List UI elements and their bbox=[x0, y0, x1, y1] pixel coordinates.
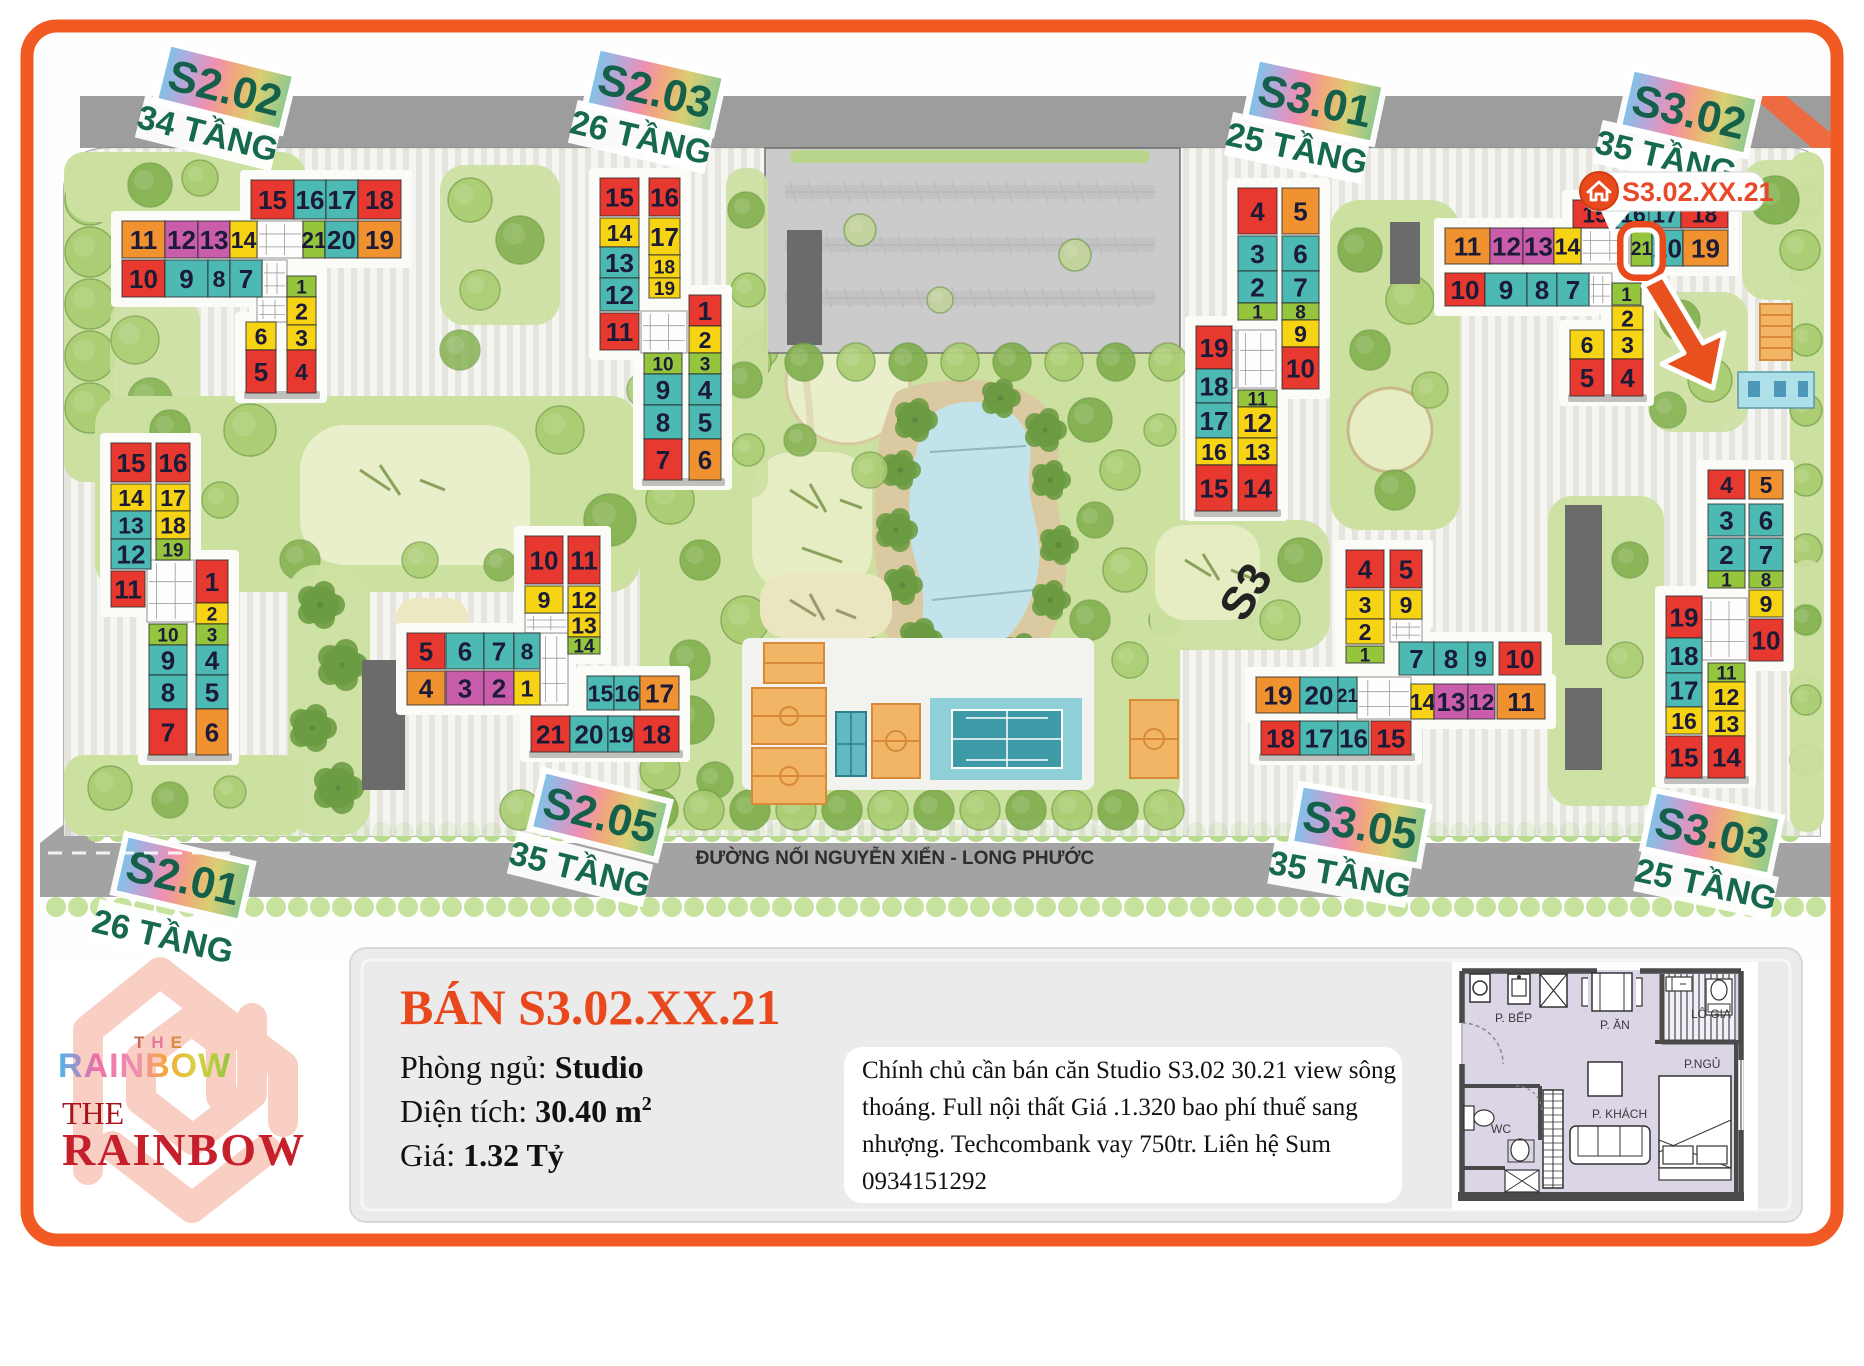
svg-text:S3.02.XX.21: S3.02.XX.21 bbox=[1622, 177, 1774, 207]
svg-text:6: 6 bbox=[458, 636, 472, 666]
svg-text:4: 4 bbox=[1620, 363, 1635, 393]
svg-text:16: 16 bbox=[159, 448, 188, 478]
svg-text:6: 6 bbox=[1759, 505, 1773, 535]
svg-text:16: 16 bbox=[1201, 439, 1227, 465]
svg-text:10: 10 bbox=[1506, 644, 1535, 674]
svg-text:6: 6 bbox=[1581, 332, 1594, 358]
svg-text:Phòng ngủ: Studio: Phòng ngủ: Studio bbox=[400, 1049, 644, 1085]
svg-text:6: 6 bbox=[255, 323, 268, 349]
svg-text:16: 16 bbox=[650, 182, 679, 212]
svg-text:8: 8 bbox=[656, 407, 670, 437]
svg-text:20: 20 bbox=[575, 719, 604, 749]
svg-text:13: 13 bbox=[1245, 439, 1271, 465]
svg-text:14: 14 bbox=[1712, 742, 1741, 772]
svg-text:13: 13 bbox=[571, 612, 597, 638]
svg-text:3: 3 bbox=[295, 325, 308, 351]
svg-text:2: 2 bbox=[1719, 540, 1733, 570]
svg-text:21: 21 bbox=[1631, 239, 1653, 260]
svg-text:15: 15 bbox=[588, 680, 614, 706]
svg-text:nhượng. Techcombank vay 750tr.: nhượng. Techcombank vay 750tr. Liên hệ S… bbox=[862, 1131, 1331, 1158]
svg-text:14: 14 bbox=[1555, 233, 1581, 259]
svg-text:14: 14 bbox=[231, 227, 257, 253]
svg-text:11: 11 bbox=[1454, 231, 1482, 261]
svg-text:17: 17 bbox=[1670, 675, 1699, 705]
svg-text:LÔ GIA: LÔ GIA bbox=[1691, 1006, 1731, 1021]
svg-text:10: 10 bbox=[1752, 625, 1781, 655]
svg-text:3: 3 bbox=[1250, 239, 1264, 269]
svg-text:17: 17 bbox=[160, 485, 186, 511]
svg-text:4: 4 bbox=[205, 645, 220, 675]
svg-text:18: 18 bbox=[160, 512, 186, 538]
svg-text:6: 6 bbox=[205, 717, 219, 747]
svg-text:7: 7 bbox=[492, 636, 506, 666]
svg-text:10: 10 bbox=[530, 545, 559, 575]
svg-text:15: 15 bbox=[1670, 742, 1699, 772]
svg-text:2: 2 bbox=[1359, 619, 1372, 645]
svg-text:19: 19 bbox=[1691, 233, 1720, 263]
svg-text:15: 15 bbox=[117, 448, 146, 478]
svg-text:P.NGỦ: P.NGỦ bbox=[1684, 1056, 1720, 1071]
svg-text:14: 14 bbox=[1410, 689, 1436, 715]
svg-text:1: 1 bbox=[1721, 570, 1732, 591]
svg-text:1: 1 bbox=[698, 296, 712, 326]
svg-text:13: 13 bbox=[1714, 711, 1740, 737]
svg-text:thoáng. Full nội thất Giá .1.3: thoáng. Full nội thất Giá .1.320 bao phí… bbox=[862, 1094, 1358, 1121]
svg-text:19: 19 bbox=[365, 225, 394, 255]
svg-text:18: 18 bbox=[642, 719, 671, 749]
svg-text:17: 17 bbox=[1200, 406, 1229, 436]
svg-text:19: 19 bbox=[1264, 680, 1293, 710]
svg-text:19: 19 bbox=[1670, 602, 1699, 632]
svg-text:12: 12 bbox=[571, 587, 597, 613]
svg-text:5: 5 bbox=[698, 407, 712, 437]
svg-text:2: 2 bbox=[207, 604, 218, 625]
svg-text:6: 6 bbox=[698, 445, 712, 475]
svg-text:WC: WC bbox=[1491, 1122, 1511, 1136]
svg-text:21: 21 bbox=[1337, 686, 1359, 707]
svg-text:9: 9 bbox=[1294, 321, 1307, 347]
svg-text:9: 9 bbox=[1474, 646, 1487, 672]
svg-text:1: 1 bbox=[1621, 285, 1632, 306]
svg-text:18: 18 bbox=[365, 185, 394, 215]
svg-text:7: 7 bbox=[161, 717, 175, 747]
svg-text:15: 15 bbox=[1377, 723, 1406, 753]
svg-text:6: 6 bbox=[1293, 239, 1307, 269]
svg-text:5: 5 bbox=[1293, 196, 1307, 226]
svg-text:2: 2 bbox=[295, 298, 308, 324]
svg-text:15: 15 bbox=[1200, 473, 1229, 503]
svg-text:5: 5 bbox=[1760, 472, 1773, 498]
svg-text:9: 9 bbox=[1760, 591, 1773, 617]
svg-text:19: 19 bbox=[654, 279, 675, 300]
svg-text:15: 15 bbox=[605, 182, 634, 212]
svg-text:Chính chủ cần bán căn Studio S: Chính chủ cần bán căn Studio S3.02 30.21… bbox=[862, 1057, 1396, 1084]
svg-text:4: 4 bbox=[1250, 196, 1265, 226]
svg-text:9: 9 bbox=[161, 645, 175, 675]
svg-text:11: 11 bbox=[606, 317, 634, 347]
svg-text:12: 12 bbox=[605, 280, 634, 310]
svg-text:5: 5 bbox=[254, 357, 268, 387]
svg-text:5: 5 bbox=[205, 677, 219, 707]
svg-text:8: 8 bbox=[161, 677, 175, 707]
svg-text:1: 1 bbox=[1252, 302, 1263, 323]
svg-text:18: 18 bbox=[1266, 723, 1295, 753]
svg-text:Diện tích: 30.40 m2: Diện tích: 30.40 m2 bbox=[400, 1093, 652, 1129]
svg-text:4: 4 bbox=[419, 673, 434, 703]
svg-text:12: 12 bbox=[1492, 231, 1521, 261]
svg-text:13: 13 bbox=[605, 248, 634, 278]
svg-text:13: 13 bbox=[1524, 231, 1553, 261]
svg-text:12: 12 bbox=[1243, 408, 1272, 438]
svg-text:3: 3 bbox=[1719, 505, 1733, 535]
svg-text:2: 2 bbox=[1250, 272, 1264, 302]
svg-text:17: 17 bbox=[1305, 723, 1334, 753]
svg-text:21: 21 bbox=[536, 719, 565, 749]
svg-text:13: 13 bbox=[1437, 687, 1466, 717]
svg-text:16: 16 bbox=[1671, 708, 1697, 734]
svg-text:10: 10 bbox=[652, 354, 673, 375]
svg-text:7: 7 bbox=[1759, 540, 1773, 570]
svg-text:7: 7 bbox=[239, 264, 253, 294]
svg-text:9: 9 bbox=[538, 587, 551, 613]
svg-text:10: 10 bbox=[1451, 275, 1480, 305]
svg-text:11: 11 bbox=[130, 225, 158, 255]
svg-text:9: 9 bbox=[1400, 592, 1413, 618]
svg-text:5: 5 bbox=[1399, 554, 1413, 584]
svg-text:3: 3 bbox=[1359, 592, 1372, 618]
svg-text:7: 7 bbox=[1409, 644, 1423, 674]
svg-text:5: 5 bbox=[419, 636, 433, 666]
svg-text:20: 20 bbox=[327, 225, 356, 255]
svg-text:RAINBOW: RAINBOW bbox=[58, 1047, 231, 1085]
svg-text:12: 12 bbox=[167, 225, 196, 255]
svg-text:18: 18 bbox=[1200, 371, 1229, 401]
svg-text:4: 4 bbox=[1358, 554, 1373, 584]
svg-text:10: 10 bbox=[129, 264, 158, 294]
svg-text:ĐƯỜNG NỐI NGUYỄN XIỂN - LONG P: ĐƯỜNG NỐI NGUYỄN XIỂN - LONG PHƯỚC bbox=[696, 847, 1095, 869]
svg-text:17: 17 bbox=[328, 185, 357, 215]
svg-text:17: 17 bbox=[645, 678, 674, 708]
svg-text:2: 2 bbox=[1621, 305, 1634, 331]
svg-text:1: 1 bbox=[296, 277, 307, 298]
svg-text:14: 14 bbox=[573, 636, 595, 657]
svg-text:5: 5 bbox=[1580, 363, 1594, 393]
svg-text:3: 3 bbox=[207, 625, 218, 646]
svg-text:16: 16 bbox=[1339, 723, 1368, 753]
svg-text:11: 11 bbox=[1716, 663, 1737, 684]
svg-text:4: 4 bbox=[295, 359, 308, 385]
svg-text:9: 9 bbox=[1499, 275, 1513, 305]
svg-text:16: 16 bbox=[296, 185, 325, 215]
svg-text:3: 3 bbox=[1621, 332, 1634, 358]
svg-text:11: 11 bbox=[570, 545, 598, 575]
svg-text:15: 15 bbox=[258, 185, 287, 215]
svg-text:P. KHÁCH: P. KHÁCH bbox=[1592, 1106, 1647, 1121]
svg-text:11: 11 bbox=[1507, 687, 1535, 717]
svg-text:14: 14 bbox=[607, 220, 633, 246]
svg-text:19: 19 bbox=[608, 721, 634, 747]
svg-text:19: 19 bbox=[1200, 333, 1229, 363]
svg-text:1: 1 bbox=[521, 675, 534, 701]
svg-text:8: 8 bbox=[1444, 644, 1458, 674]
svg-text:11: 11 bbox=[114, 574, 142, 604]
svg-text:14: 14 bbox=[1243, 473, 1272, 503]
svg-text:0934151292: 0934151292 bbox=[862, 1168, 987, 1195]
svg-text:21: 21 bbox=[301, 227, 327, 253]
svg-text:8: 8 bbox=[213, 266, 226, 292]
svg-text:13: 13 bbox=[200, 225, 229, 255]
svg-text:10: 10 bbox=[1286, 353, 1315, 383]
svg-text:RAINBOW: RAINBOW bbox=[62, 1124, 306, 1175]
svg-text:7: 7 bbox=[1566, 275, 1580, 305]
svg-text:18: 18 bbox=[1670, 641, 1699, 671]
svg-text:1: 1 bbox=[1360, 645, 1371, 666]
svg-text:19: 19 bbox=[162, 540, 183, 561]
svg-text:8: 8 bbox=[1761, 570, 1772, 591]
svg-text:8: 8 bbox=[1535, 275, 1549, 305]
svg-text:P. ĂN: P. ĂN bbox=[1600, 1017, 1630, 1032]
svg-text:4: 4 bbox=[698, 375, 713, 405]
svg-text:16: 16 bbox=[614, 680, 640, 706]
svg-text:2: 2 bbox=[699, 327, 712, 353]
svg-text:P. BẾP: P. BẾP bbox=[1495, 1010, 1532, 1025]
svg-text:9: 9 bbox=[179, 264, 193, 294]
svg-text:8: 8 bbox=[521, 638, 534, 664]
svg-text:2: 2 bbox=[492, 673, 506, 703]
svg-text:12: 12 bbox=[117, 539, 146, 569]
svg-text:13: 13 bbox=[118, 512, 144, 538]
svg-text:Giá: 1.32 Tỷ: Giá: 1.32 Tỷ bbox=[400, 1137, 564, 1173]
svg-text:18: 18 bbox=[654, 257, 675, 278]
svg-text:7: 7 bbox=[656, 445, 670, 475]
svg-text:4: 4 bbox=[1720, 472, 1733, 498]
svg-text:9: 9 bbox=[656, 375, 670, 405]
svg-text:14: 14 bbox=[118, 485, 144, 511]
svg-text:BÁN S3.02.XX.21: BÁN S3.02.XX.21 bbox=[400, 979, 781, 1035]
svg-text:3: 3 bbox=[700, 354, 711, 375]
svg-text:10: 10 bbox=[157, 625, 178, 646]
svg-text:7: 7 bbox=[1293, 272, 1307, 302]
svg-text:1: 1 bbox=[205, 567, 219, 597]
svg-text:17: 17 bbox=[650, 222, 679, 252]
svg-text:3: 3 bbox=[458, 673, 472, 703]
svg-text:12: 12 bbox=[1469, 689, 1495, 715]
svg-text:12: 12 bbox=[1714, 684, 1740, 710]
svg-text:20: 20 bbox=[1305, 680, 1334, 710]
